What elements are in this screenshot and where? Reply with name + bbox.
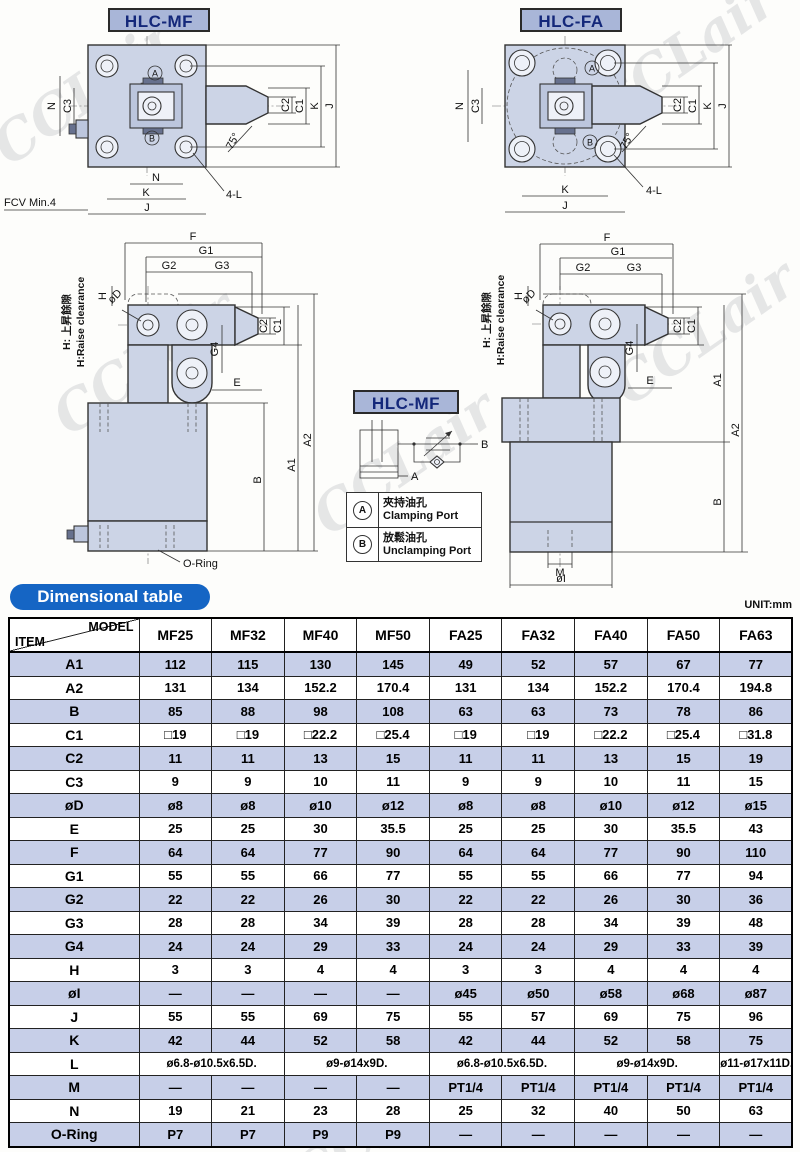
raise-clearance-note-en: H:Raise clearance bbox=[495, 275, 507, 366]
dim-g1: G1 bbox=[611, 246, 626, 258]
value-cell: 30 bbox=[647, 888, 720, 912]
callout-oring: O-Ring bbox=[183, 558, 218, 570]
dim-g4: G4 bbox=[624, 341, 636, 356]
value-cell: 39 bbox=[647, 911, 720, 935]
hlc-mf-top-view-drawing: A B N C3 C2 C1 K J 75° N K J bbox=[0, 0, 400, 230]
value-cell: ø15 bbox=[720, 794, 793, 818]
value-cell: 39 bbox=[720, 935, 793, 959]
value-cell: 25 bbox=[502, 817, 575, 841]
value-cell: 19 bbox=[720, 747, 793, 771]
model-header-fa50: FA50 bbox=[647, 618, 720, 652]
title-hlc-mf-schematic: HLC-MF bbox=[353, 390, 459, 414]
flow-control-valve-symbol bbox=[398, 431, 470, 468]
value-cell: 130 bbox=[284, 652, 357, 676]
value-cell: 28 bbox=[139, 911, 212, 935]
value-cell: 3 bbox=[139, 958, 212, 982]
value-cell: 4 bbox=[284, 958, 357, 982]
value-cell: — bbox=[502, 1123, 575, 1147]
dim-k-right: K bbox=[309, 102, 321, 110]
value-cell: 10 bbox=[575, 770, 648, 794]
table-row: M————PT1/4PT1/4PT1/4PT1/4PT1/4 bbox=[9, 1076, 792, 1100]
value-cell: 96 bbox=[720, 1005, 793, 1029]
value-cell: □22.2 bbox=[575, 723, 648, 747]
value-cell: 77 bbox=[575, 841, 648, 865]
dim-n-left: N bbox=[46, 102, 58, 110]
value-cell: 9 bbox=[502, 770, 575, 794]
value-cell: 39 bbox=[357, 911, 430, 935]
mf-top-body bbox=[68, 36, 286, 176]
value-cell: 55 bbox=[139, 1005, 212, 1029]
value-cell: ø10 bbox=[575, 794, 648, 818]
dim-j-right: J bbox=[324, 103, 336, 109]
model-header-mf40: MF40 bbox=[284, 618, 357, 652]
value-cell: 57 bbox=[575, 652, 648, 676]
dim-g3: G3 bbox=[627, 262, 642, 274]
port-legend: A 夾持油孔 Clamping Port B 放鬆油孔 Unclamping P… bbox=[346, 492, 482, 562]
value-cell: 30 bbox=[575, 817, 648, 841]
value-cell: □19 bbox=[139, 723, 212, 747]
dim-c1: C1 bbox=[686, 319, 698, 333]
unclamping-port-label-zh: 放鬆油孔 bbox=[383, 532, 471, 545]
value-cell: P9 bbox=[357, 1123, 430, 1147]
value-cell: 75 bbox=[720, 1029, 793, 1053]
value-cell: 77 bbox=[720, 652, 793, 676]
value-cell: 9 bbox=[429, 770, 502, 794]
value-cell: 9 bbox=[212, 770, 285, 794]
value-cell: 58 bbox=[647, 1029, 720, 1053]
value-cell: 44 bbox=[502, 1029, 575, 1053]
value-cell: ø45 bbox=[429, 982, 502, 1006]
value-cell: 55 bbox=[139, 864, 212, 888]
dim-e: E bbox=[233, 377, 240, 389]
value-cell: PT1/4 bbox=[647, 1076, 720, 1100]
value-cell: □22.2 bbox=[284, 723, 357, 747]
port-b-symbol: B bbox=[353, 535, 372, 554]
value-cell: 88 bbox=[212, 700, 285, 724]
value-cell: 52 bbox=[502, 652, 575, 676]
dimensional-table: MODEL ITEM MF25 MF32 MF40 MF50 FA25 FA32… bbox=[8, 617, 793, 1148]
value-cell: 194.8 bbox=[720, 676, 793, 700]
item-cell: L bbox=[9, 1052, 139, 1076]
value-cell: 11 bbox=[502, 747, 575, 771]
value-cell: 69 bbox=[284, 1005, 357, 1029]
value-cell: 33 bbox=[647, 935, 720, 959]
value-cell: 29 bbox=[284, 935, 357, 959]
table-row: F6464779064647790110 bbox=[9, 841, 792, 865]
item-cell: G3 bbox=[9, 911, 139, 935]
item-cell: K bbox=[9, 1029, 139, 1053]
value-cell: 3 bbox=[429, 958, 502, 982]
value-cell: 21 bbox=[212, 1099, 285, 1123]
value-cell: 152.2 bbox=[575, 676, 648, 700]
value-cell: ø68 bbox=[647, 982, 720, 1006]
value-cell: 52 bbox=[575, 1029, 648, 1053]
table-row: G2222226302222263036 bbox=[9, 888, 792, 912]
value-cell: ø8 bbox=[212, 794, 285, 818]
clamp-arm bbox=[206, 86, 268, 124]
item-cell: F bbox=[9, 841, 139, 865]
value-cell: 67 bbox=[647, 652, 720, 676]
value-cell: 15 bbox=[720, 770, 793, 794]
clamping-port-label-en: Clamping Port bbox=[383, 510, 458, 523]
value-cell: 4 bbox=[357, 958, 430, 982]
table-row: øI————ø45ø50ø58ø68ø87 bbox=[9, 982, 792, 1006]
dim-c2: C2 bbox=[672, 98, 684, 112]
value-cell: 22 bbox=[429, 888, 502, 912]
catalog-page: CCLair CCLair CCLair CCLair CCLair CCLai… bbox=[0, 0, 800, 1152]
dim-g2: G2 bbox=[162, 260, 177, 272]
value-cell: 64 bbox=[139, 841, 212, 865]
table-row: H334433444 bbox=[9, 958, 792, 982]
value-cell: □31.8 bbox=[720, 723, 793, 747]
item-cell: J bbox=[9, 1005, 139, 1029]
table-row: K424452584244525875 bbox=[9, 1029, 792, 1053]
dim-c1: C1 bbox=[687, 99, 699, 113]
value-cell: 55 bbox=[212, 1005, 285, 1029]
value-cell: 131 bbox=[139, 676, 212, 700]
value-cell: 75 bbox=[357, 1005, 430, 1029]
value-cell: 9 bbox=[139, 770, 212, 794]
section-title-dimensional-table: Dimensional table bbox=[10, 584, 210, 610]
value-cell: 35.5 bbox=[357, 817, 430, 841]
value-cell: 50 bbox=[647, 1099, 720, 1123]
value-cell: 55 bbox=[429, 1005, 502, 1029]
model-header-mf32: MF32 bbox=[212, 618, 285, 652]
value-cell: 98 bbox=[284, 700, 357, 724]
value-cell: — bbox=[284, 982, 357, 1006]
value-cell: 42 bbox=[139, 1029, 212, 1053]
value-cell: 34 bbox=[575, 911, 648, 935]
callout-4l: 4-L bbox=[226, 189, 242, 201]
dim-j-bottom: J bbox=[562, 200, 568, 212]
value-cell: 11 bbox=[429, 747, 502, 771]
value-cell: 55 bbox=[502, 864, 575, 888]
raise-clearance-note-zh: H: 上昇餘隙 bbox=[480, 292, 493, 348]
dim-k-bottom: K bbox=[561, 184, 569, 196]
value-cell: 22 bbox=[212, 888, 285, 912]
value-cell: ø12 bbox=[357, 794, 430, 818]
value-cell: 3 bbox=[502, 958, 575, 982]
clamping-port-label-zh: 夾持油孔 bbox=[383, 497, 458, 510]
value-cell: — bbox=[139, 982, 212, 1006]
item-cell: øD bbox=[9, 794, 139, 818]
value-cell: 15 bbox=[357, 747, 430, 771]
value-cell: 90 bbox=[647, 841, 720, 865]
value-cell: PT1/4 bbox=[720, 1076, 793, 1100]
dim-j-bottom: J bbox=[144, 202, 150, 214]
value-cell: — bbox=[720, 1123, 793, 1147]
item-cell: C1 bbox=[9, 723, 139, 747]
dim-c1: C1 bbox=[294, 99, 306, 113]
value-cell: 40 bbox=[575, 1099, 648, 1123]
table-row: øDø8ø8ø10ø12ø8ø8ø10ø12ø15 bbox=[9, 794, 792, 818]
dim-f: F bbox=[604, 232, 611, 244]
value-cell: 30 bbox=[284, 817, 357, 841]
value-cell: 86 bbox=[720, 700, 793, 724]
value-cell: 42 bbox=[429, 1029, 502, 1053]
value-cell: 85 bbox=[139, 700, 212, 724]
value-cell: 145 bbox=[357, 652, 430, 676]
value-cell: 36 bbox=[720, 888, 793, 912]
dim-od: øD bbox=[520, 287, 539, 306]
value-cell: 4 bbox=[647, 958, 720, 982]
value-cell: 75 bbox=[647, 1005, 720, 1029]
port-a-symbol: A bbox=[353, 501, 372, 520]
value-cell: 22 bbox=[139, 888, 212, 912]
dim-j-right: J bbox=[717, 103, 729, 109]
value-cell: — bbox=[139, 1076, 212, 1100]
table-row: C2111113151111131519 bbox=[9, 747, 792, 771]
cylinder-symbol bbox=[360, 420, 398, 478]
value-cell: 44 bbox=[212, 1029, 285, 1053]
clamp-arm bbox=[592, 86, 662, 124]
value-cell: 10 bbox=[284, 770, 357, 794]
value-cell: — bbox=[284, 1076, 357, 1100]
item-cell: M bbox=[9, 1076, 139, 1100]
value-cell: 26 bbox=[575, 888, 648, 912]
value-cell: — bbox=[212, 982, 285, 1006]
value-cell: 63 bbox=[502, 700, 575, 724]
corner-item-label: ITEM bbox=[15, 635, 45, 649]
table-row: G1555566775555667794 bbox=[9, 864, 792, 888]
table-row: B8588981086363737886 bbox=[9, 700, 792, 724]
table-row: C1□19□19□22.2□25.4□19□19□22.2□25.4□31.8 bbox=[9, 723, 792, 747]
item-cell: G4 bbox=[9, 935, 139, 959]
value-cell: 170.4 bbox=[647, 676, 720, 700]
dim-a1: A1 bbox=[286, 458, 298, 471]
table-row: A2131134152.2170.4131134152.2170.4194.8 bbox=[9, 676, 792, 700]
raise-clearance-note-zh: H: 上昇餘隙 bbox=[60, 294, 73, 350]
dim-a2: A2 bbox=[302, 433, 314, 446]
value-cell: ø6.8-ø10.5x6.5D. bbox=[429, 1052, 574, 1076]
value-cell: PT1/4 bbox=[502, 1076, 575, 1100]
item-cell: A2 bbox=[9, 676, 139, 700]
dim-c2: C2 bbox=[672, 319, 684, 333]
value-cell: 19 bbox=[139, 1099, 212, 1123]
value-cell: 28 bbox=[429, 911, 502, 935]
raise-clearance-note-en: H:Raise clearance bbox=[75, 277, 87, 368]
value-cell: 152.2 bbox=[284, 676, 357, 700]
dim-c3: C3 bbox=[470, 99, 482, 113]
value-cell: ø9-ø14x9D. bbox=[284, 1052, 429, 1076]
value-cell: 78 bbox=[647, 700, 720, 724]
value-cell: 57 bbox=[502, 1005, 575, 1029]
value-cell: 110 bbox=[720, 841, 793, 865]
unit-label: UNIT:mm bbox=[744, 599, 792, 611]
value-cell: 66 bbox=[575, 864, 648, 888]
dim-a1: A1 bbox=[712, 373, 724, 386]
value-cell: 73 bbox=[575, 700, 648, 724]
hydraulic-circuit-schematic: B A bbox=[348, 418, 498, 490]
value-cell: P7 bbox=[139, 1123, 212, 1147]
fa-top-body bbox=[492, 36, 682, 176]
value-cell: ø6.8-ø10.5x6.5D. bbox=[139, 1052, 284, 1076]
table-row: E25253035.525253035.543 bbox=[9, 817, 792, 841]
item-cell: C2 bbox=[9, 747, 139, 771]
value-cell: ø8 bbox=[502, 794, 575, 818]
dim-angle: 75° bbox=[224, 131, 242, 151]
value-cell: 13 bbox=[575, 747, 648, 771]
model-header-mf25: MF25 bbox=[139, 618, 212, 652]
value-cell: 35.5 bbox=[647, 817, 720, 841]
value-cell: — bbox=[575, 1123, 648, 1147]
dim-g1: G1 bbox=[199, 245, 214, 257]
port-a-marker: A bbox=[589, 64, 595, 74]
dim-b: B bbox=[252, 476, 264, 483]
table-header-row: MODEL ITEM MF25 MF32 MF40 MF50 FA25 FA32… bbox=[9, 618, 792, 652]
fa-side-body bbox=[502, 286, 678, 576]
value-cell: 29 bbox=[575, 935, 648, 959]
table-row: G3282834392828343948 bbox=[9, 911, 792, 935]
value-cell: 77 bbox=[647, 864, 720, 888]
port-a-marker: A bbox=[152, 69, 158, 79]
value-cell: ø8 bbox=[429, 794, 502, 818]
value-cell: 15 bbox=[647, 747, 720, 771]
dim-c2: C2 bbox=[280, 98, 292, 112]
model-header-fa25: FA25 bbox=[429, 618, 502, 652]
port-b-marker: B bbox=[149, 134, 155, 144]
value-cell: 170.4 bbox=[357, 676, 430, 700]
value-cell: 11 bbox=[357, 770, 430, 794]
callout-fcv: FCV Min.4 bbox=[4, 197, 56, 209]
value-cell: ø87 bbox=[720, 982, 793, 1006]
value-cell: 112 bbox=[139, 652, 212, 676]
legend-row-clamping: A 夾持油孔 Clamping Port bbox=[347, 493, 481, 527]
value-cell: 30 bbox=[357, 888, 430, 912]
table-row: J555569755557697596 bbox=[9, 1005, 792, 1029]
dim-a2: A2 bbox=[730, 423, 742, 436]
value-cell: — bbox=[212, 1076, 285, 1100]
value-cell: 24 bbox=[212, 935, 285, 959]
value-cell: 13 bbox=[284, 747, 357, 771]
legend-row-unclamping: B 放鬆油孔 Unclamping Port bbox=[347, 527, 481, 561]
value-cell: 28 bbox=[502, 911, 575, 935]
value-cell: 108 bbox=[357, 700, 430, 724]
port-b-marker: B bbox=[587, 138, 593, 148]
item-cell: G2 bbox=[9, 888, 139, 912]
value-cell: □19 bbox=[212, 723, 285, 747]
value-cell: 63 bbox=[720, 1099, 793, 1123]
corner-model-label: MODEL bbox=[88, 620, 133, 634]
table-row: G4242429332424293339 bbox=[9, 935, 792, 959]
value-cell: 77 bbox=[284, 841, 357, 865]
value-cell: 66 bbox=[284, 864, 357, 888]
value-cell: 52 bbox=[284, 1029, 357, 1053]
dim-g3: G3 bbox=[215, 260, 230, 272]
value-cell: — bbox=[357, 1076, 430, 1100]
value-cell: 24 bbox=[139, 935, 212, 959]
value-cell: 115 bbox=[212, 652, 285, 676]
value-cell: 3 bbox=[212, 958, 285, 982]
value-cell: 33 bbox=[357, 935, 430, 959]
dim-g4: G4 bbox=[209, 342, 221, 357]
table-row: C399101199101115 bbox=[9, 770, 792, 794]
value-cell: — bbox=[429, 1123, 502, 1147]
value-cell: 134 bbox=[212, 676, 285, 700]
value-cell: 64 bbox=[212, 841, 285, 865]
value-cell: ø8 bbox=[139, 794, 212, 818]
value-cell: 26 bbox=[284, 888, 357, 912]
hlc-fa-top-view-drawing: A B N C3 C2 C1 K J 75° K J 4- bbox=[400, 0, 800, 230]
value-cell: 4 bbox=[575, 958, 648, 982]
value-cell: 58 bbox=[357, 1029, 430, 1053]
value-cell: □19 bbox=[429, 723, 502, 747]
item-cell: E bbox=[9, 817, 139, 841]
value-cell: PT1/4 bbox=[575, 1076, 648, 1100]
dim-c2: C2 bbox=[258, 319, 270, 333]
value-cell: 28 bbox=[357, 1099, 430, 1123]
item-cell: B bbox=[9, 700, 139, 724]
dim-e: E bbox=[646, 375, 653, 387]
dim-k-bottom: K bbox=[142, 187, 150, 199]
dim-c1: C1 bbox=[272, 319, 284, 333]
dim-n-bottom: N bbox=[152, 172, 160, 184]
value-cell: 25 bbox=[429, 817, 502, 841]
value-cell: 43 bbox=[720, 817, 793, 841]
value-cell: PT1/4 bbox=[429, 1076, 502, 1100]
dim-b: B bbox=[712, 498, 724, 505]
corner-cell: MODEL ITEM bbox=[9, 618, 139, 652]
value-cell: 77 bbox=[357, 864, 430, 888]
value-cell: 55 bbox=[429, 864, 502, 888]
item-cell: A1 bbox=[9, 652, 139, 676]
value-cell: — bbox=[647, 1123, 720, 1147]
unclamping-port-label-en: Unclamping Port bbox=[383, 545, 471, 558]
item-cell: O-Ring bbox=[9, 1123, 139, 1147]
value-cell: P7 bbox=[212, 1123, 285, 1147]
value-cell: 11 bbox=[212, 747, 285, 771]
value-cell: 25 bbox=[139, 817, 212, 841]
value-cell: 64 bbox=[502, 841, 575, 865]
schematic-port-b: B bbox=[481, 439, 488, 451]
dim-od: øD bbox=[106, 287, 125, 306]
value-cell: 94 bbox=[720, 864, 793, 888]
callout-4l: 4-L bbox=[646, 185, 662, 197]
value-cell: ø9-ø14x9D. bbox=[575, 1052, 720, 1076]
value-cell: — bbox=[357, 982, 430, 1006]
value-cell: 22 bbox=[502, 888, 575, 912]
value-cell: □25.4 bbox=[647, 723, 720, 747]
value-cell: ø11-ø17x11D. bbox=[720, 1052, 793, 1076]
value-cell: 134 bbox=[502, 676, 575, 700]
item-cell: C3 bbox=[9, 770, 139, 794]
value-cell: 48 bbox=[720, 911, 793, 935]
value-cell: ø12 bbox=[647, 794, 720, 818]
value-cell: 23 bbox=[284, 1099, 357, 1123]
value-cell: P9 bbox=[284, 1123, 357, 1147]
value-cell: 63 bbox=[429, 700, 502, 724]
table-row: A11121151301454952576777 bbox=[9, 652, 792, 676]
item-cell: N bbox=[9, 1099, 139, 1123]
value-cell: ø58 bbox=[575, 982, 648, 1006]
value-cell: □19 bbox=[502, 723, 575, 747]
value-cell: ø50 bbox=[502, 982, 575, 1006]
value-cell: 25 bbox=[429, 1099, 502, 1123]
model-header-mf50: MF50 bbox=[357, 618, 430, 652]
mf-side-body bbox=[67, 286, 268, 564]
value-cell: □25.4 bbox=[357, 723, 430, 747]
table-row: O-RingP7P7P9P9————— bbox=[9, 1123, 792, 1147]
value-cell: 64 bbox=[429, 841, 502, 865]
model-header-fa32: FA32 bbox=[502, 618, 575, 652]
value-cell: ø10 bbox=[284, 794, 357, 818]
item-cell: G1 bbox=[9, 864, 139, 888]
hlc-mf-side-view-drawing: H: 上昇餘隙 H:Raise clearance F G1 G2 G3 H ø… bbox=[0, 230, 340, 590]
value-cell: 11 bbox=[647, 770, 720, 794]
table-row: N192123282532405063 bbox=[9, 1099, 792, 1123]
value-cell: 4 bbox=[720, 958, 793, 982]
table-row: Lø6.8-ø10.5x6.5D.ø9-ø14x9D.ø6.8-ø10.5x6.… bbox=[9, 1052, 792, 1076]
